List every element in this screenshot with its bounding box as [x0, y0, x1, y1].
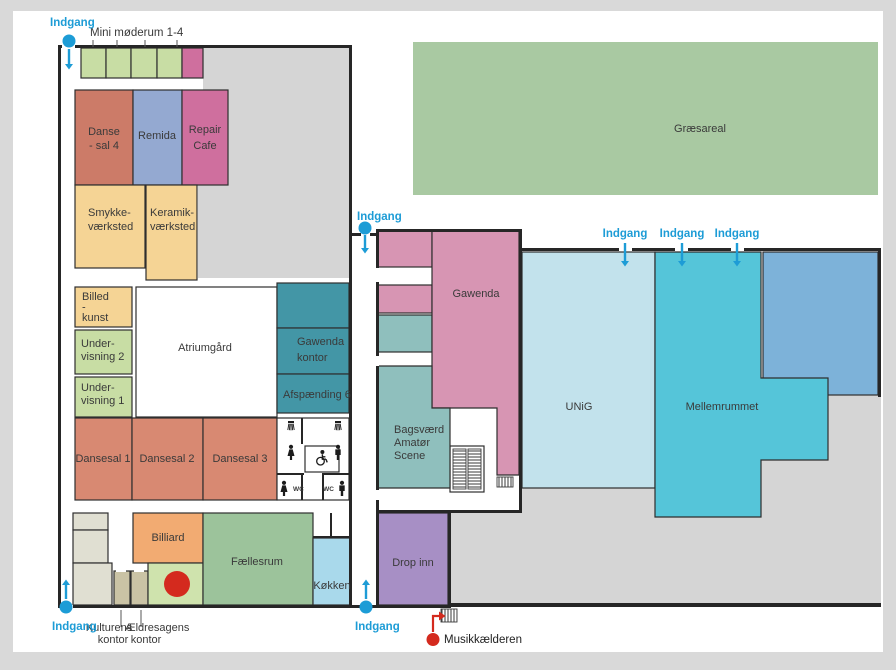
wall-segment [519, 229, 522, 513]
room-afspaending-6-label: Afspænding 6 [283, 389, 351, 401]
wall-segment [448, 510, 451, 608]
entrance-label: Indgang [355, 621, 400, 633]
room-beige-b [73, 530, 108, 563]
entrance-pin [360, 601, 373, 614]
wall-segment [451, 603, 881, 607]
room-atriumgaard-label: Atriumgård [178, 342, 232, 354]
entrance-label: Indgang [52, 621, 97, 633]
wall-segment [330, 513, 332, 538]
room-gawenda-label: Gawenda [452, 288, 500, 300]
wall-segment [376, 229, 522, 232]
stairs-main-left [453, 449, 466, 489]
stairs-small-east [497, 477, 513, 487]
head [320, 450, 324, 454]
room-dansesal-2-label: Dansesal 2 [139, 453, 194, 465]
spray [292, 424, 293, 430]
entrance-label: Indgang [660, 228, 705, 240]
label-aeldresagens-kontor-1: Ældresagens [125, 622, 190, 634]
entrance-label: Indgang [357, 211, 402, 223]
spray [289, 424, 290, 430]
room-drop-inn-label: Drop inn [392, 557, 434, 569]
entrance-label: Indgang [715, 228, 760, 240]
room-graesareal [413, 42, 878, 195]
musik-pin [427, 633, 440, 646]
label-wc-left: WC [293, 486, 304, 493]
room-kulturens-kontor [114, 571, 130, 605]
label-musikkaelderen: Musikkælderen [444, 634, 522, 646]
wall-segment [522, 248, 881, 251]
shower-head [288, 421, 294, 423]
head [340, 481, 344, 485]
red-dot-marker [164, 571, 190, 597]
room-beige-a [73, 513, 108, 530]
room-aeldresagens-kontor [131, 571, 148, 605]
room-mini-moderum-2 [106, 48, 131, 78]
spray [339, 424, 340, 430]
label-wc-right: WC [323, 486, 334, 493]
head [282, 481, 286, 485]
entrance-label: Indgang [603, 228, 648, 240]
room-dansesal-1-label: Dansesal 1 [75, 453, 130, 465]
wall-segment [58, 605, 352, 608]
room-dark-blue [763, 252, 878, 395]
room-repair-cafe [182, 90, 228, 185]
room-pink-small-2 [378, 285, 432, 313]
label-kulturens-kontor-2: kontor [98, 634, 129, 646]
entrance-pin [60, 601, 73, 614]
shower-head [335, 421, 341, 423]
room-remida-label: Remida [138, 130, 177, 142]
room-koekken [313, 538, 350, 605]
room-faellesrum-label: Fællesrum [231, 556, 283, 568]
wall-segment [878, 248, 881, 397]
door-gap [134, 570, 144, 572]
wall-segment [58, 45, 61, 608]
room-teal-unlabeled [277, 283, 349, 328]
room-dansesal-3-label: Dansesal 3 [212, 453, 267, 465]
door-gap [376, 490, 379, 500]
label-aeldresagens-kontor-2: kontor [131, 634, 162, 646]
room-billiard-label: Billiard [151, 532, 184, 544]
wall-segment [58, 45, 352, 48]
entrance-pin [359, 222, 372, 235]
room-beige-c [73, 563, 112, 605]
room-mini-moderum-3 [131, 48, 157, 78]
label-mini-moderum: Mini møderum 1-4 [90, 27, 184, 39]
stairs-main-right [468, 449, 481, 489]
door-gap [376, 356, 379, 366]
entrance-pin [63, 35, 76, 48]
wall-segment [376, 510, 379, 608]
room-gawenda-kontor [277, 328, 349, 374]
wall-segment [313, 536, 350, 538]
room-graesareal-label: Græsareal [674, 123, 726, 135]
wall-segment [322, 473, 352, 475]
entrance-label: Indgang [50, 17, 95, 29]
floor-plan-page: GræsarealDanse- sal 4RemidaRepairCafeSmy… [0, 0, 896, 670]
floor-plan-canvas: GræsarealDanse- sal 4RemidaRepairCafeSmy… [0, 0, 896, 670]
door-gap [306, 473, 320, 475]
wall-segment [277, 473, 304, 475]
room-unig-label: UNiG [566, 401, 593, 413]
room-mellemrummet-label: Mellemrummet [686, 401, 759, 413]
room-mini-pink [182, 48, 203, 78]
head [289, 445, 293, 449]
wall-segment [349, 45, 352, 608]
spray [336, 424, 337, 430]
room-teal-small [378, 315, 432, 352]
wall-segment [376, 605, 451, 608]
room-pink-small-1 [378, 231, 432, 267]
door-gap [116, 570, 126, 572]
room-mini-moderum-4 [157, 48, 182, 78]
room-unig [522, 252, 655, 488]
head [336, 445, 340, 449]
wall-segment [301, 418, 303, 444]
room-koekken-label: Køkken [313, 580, 350, 592]
room-mini-moderum-1 [81, 48, 106, 78]
door-gap [376, 268, 379, 282]
